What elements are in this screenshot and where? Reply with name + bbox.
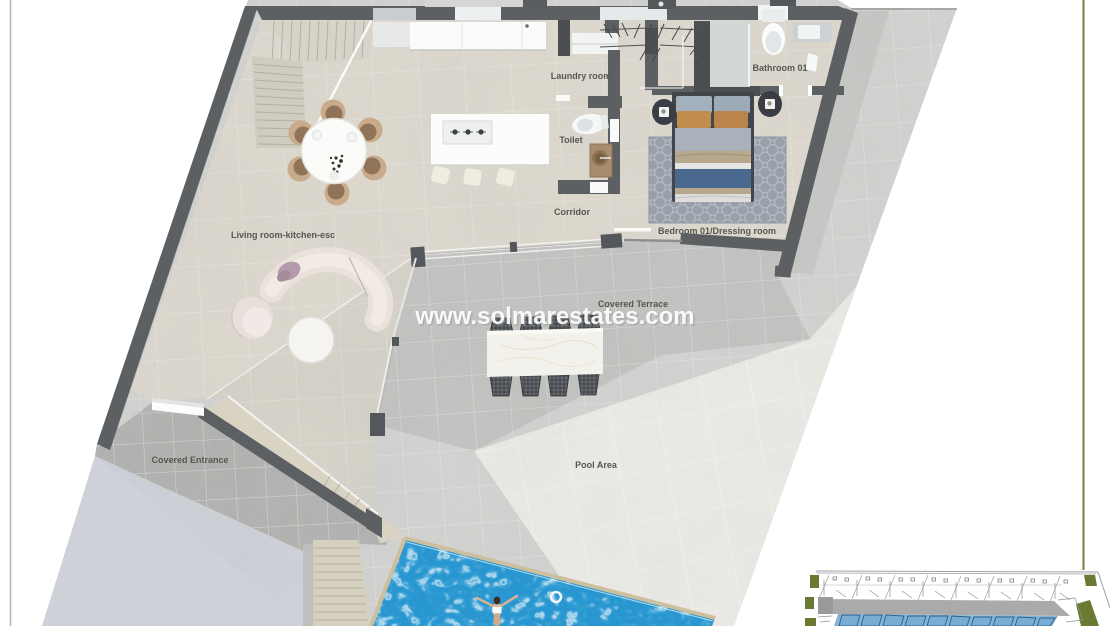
svg-text:Living room-kitchen-esc: Living room-kitchen-esc xyxy=(231,230,335,240)
svg-text:Toilet: Toilet xyxy=(559,135,582,145)
svg-text:www.solmarestates.com: www.solmarestates.com xyxy=(414,303,694,330)
svg-text:Laundry room: Laundry room xyxy=(551,71,612,81)
svg-text:Bedroom 01/Dressing room: Bedroom 01/Dressing room xyxy=(658,226,776,236)
svg-text:Covered Entrance: Covered Entrance xyxy=(151,455,228,465)
svg-text:Corridor: Corridor xyxy=(554,207,590,217)
svg-text:Pool Area: Pool Area xyxy=(575,460,618,470)
svg-text:Bathroom 01: Bathroom 01 xyxy=(752,63,807,73)
